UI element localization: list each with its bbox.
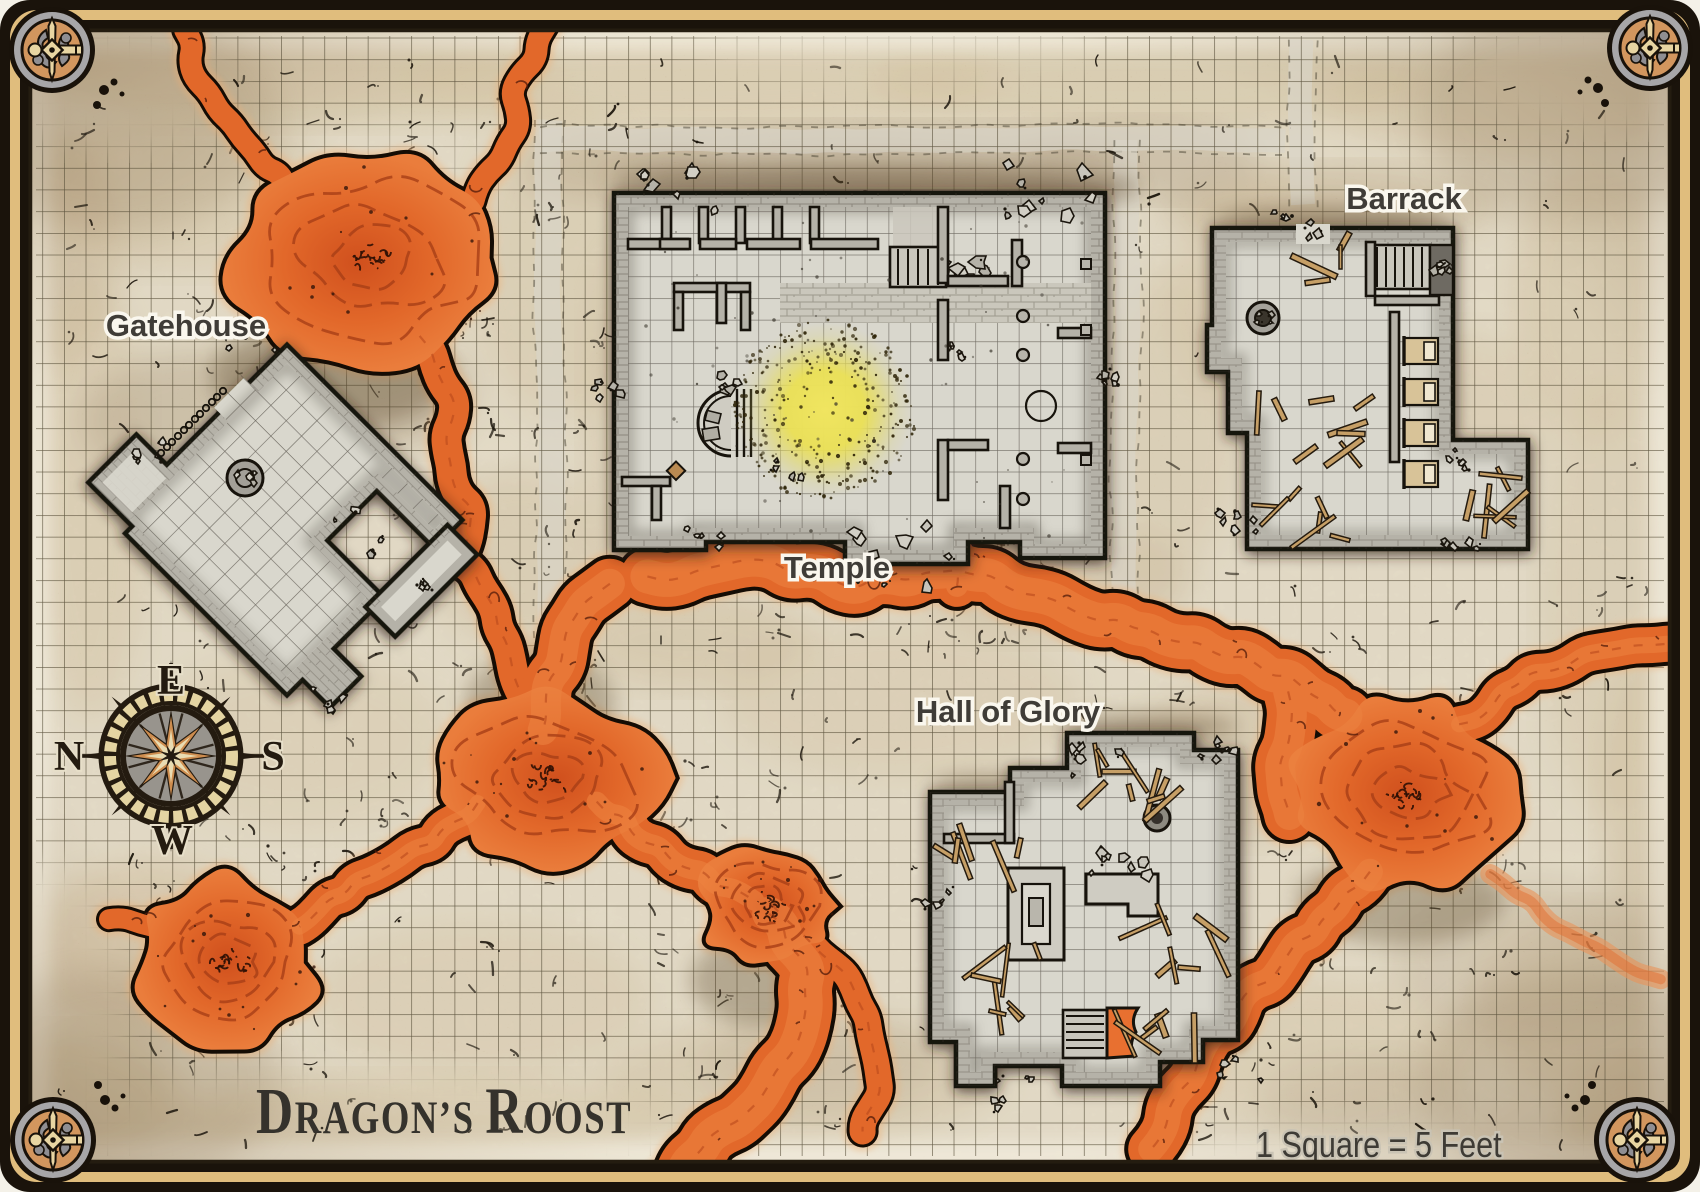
svg-text:Hall of Glory: Hall of Glory	[916, 694, 1101, 729]
svg-text:N: N	[54, 734, 84, 780]
svg-text:Gatehouse: Gatehouse	[106, 308, 266, 343]
svg-text:S: S	[261, 734, 284, 780]
svg-text:Temple: Temple	[784, 550, 890, 585]
svg-text:Barrack: Barrack	[1346, 181, 1462, 216]
svg-text:W: W	[151, 818, 193, 864]
svg-text:1 Square = 5 Feet: 1 Square = 5 Feet	[1256, 1126, 1502, 1166]
svg-text:E: E	[157, 658, 185, 704]
